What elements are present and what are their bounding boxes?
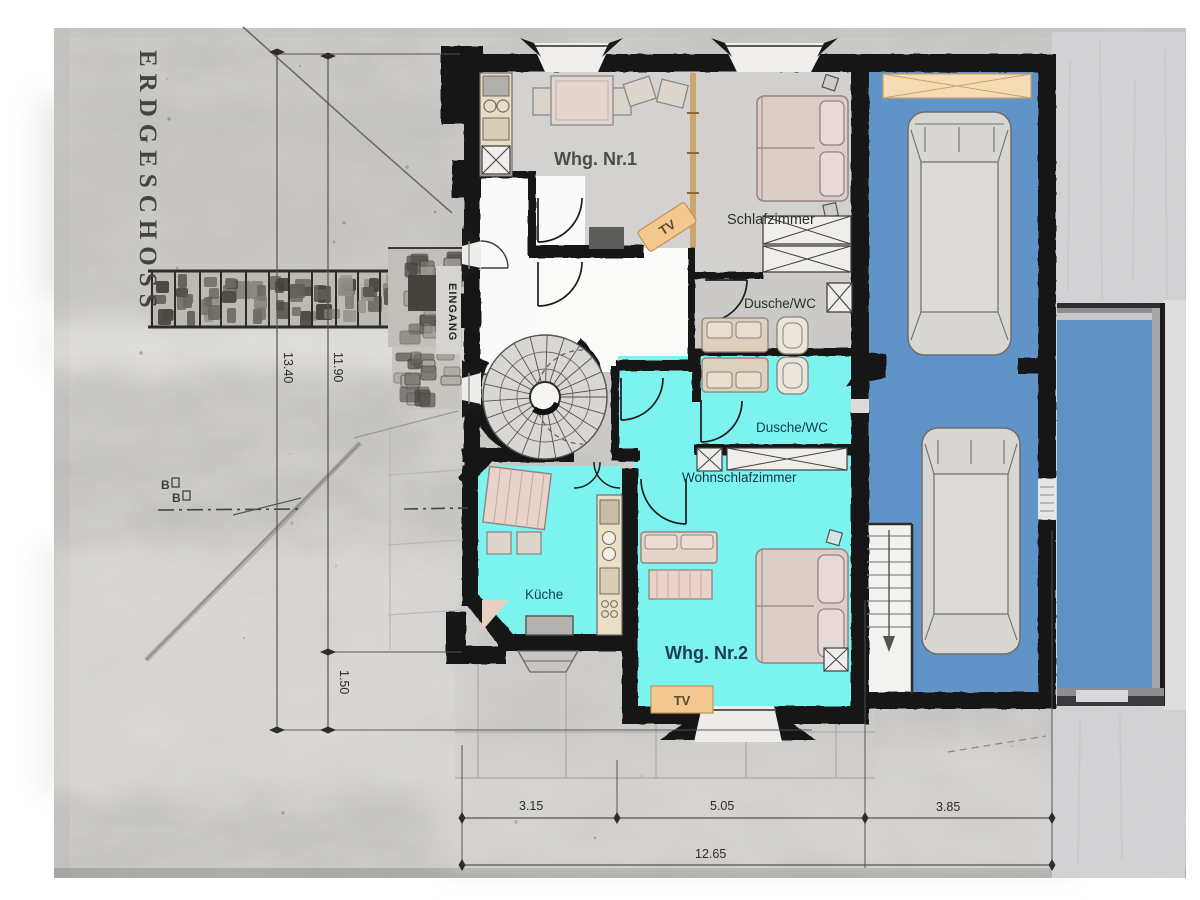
svg-text:3.15: 3.15	[519, 799, 543, 813]
svg-text:12.65: 12.65	[695, 847, 726, 861]
svg-text:B: B	[172, 491, 181, 505]
svg-text:Dusche/WC: Dusche/WC	[744, 296, 816, 311]
svg-text:Schlafzimmer: Schlafzimmer	[727, 212, 815, 228]
svg-text:13.40: 13.40	[281, 352, 295, 383]
svg-text:1.50: 1.50	[337, 670, 351, 694]
svg-text:Whg. Nr.2: Whg. Nr.2	[665, 643, 748, 663]
svg-text:Küche: Küche	[525, 587, 563, 602]
svg-text:B: B	[161, 478, 170, 492]
svg-text:11.90: 11.90	[331, 352, 345, 382]
svg-text:Wohnschlafzimmer: Wohnschlafzimmer	[682, 470, 797, 485]
svg-text:EINGANG: EINGANG	[446, 283, 458, 341]
svg-text:5.05: 5.05	[710, 799, 734, 813]
svg-text:TV: TV	[674, 693, 691, 708]
svg-text:Whg. Nr.1: Whg. Nr.1	[554, 149, 637, 169]
svg-text:ERDGESCHOSS: ERDGESCHOSS	[134, 50, 161, 315]
svg-text:3.85: 3.85	[936, 800, 960, 814]
svg-text:Dusche/WC: Dusche/WC	[756, 420, 828, 435]
